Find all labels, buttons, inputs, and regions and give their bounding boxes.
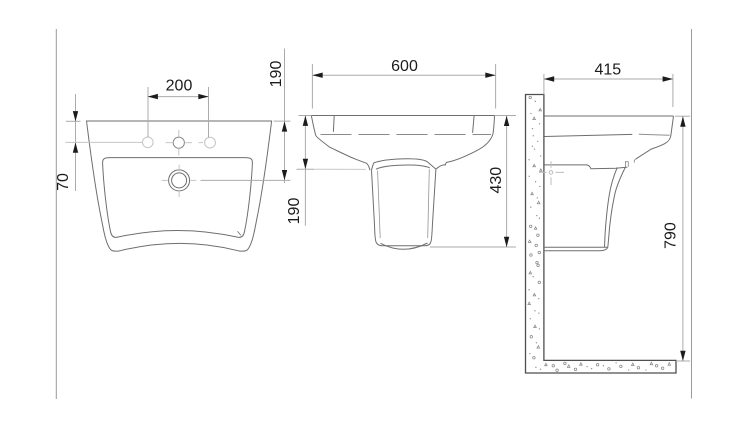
svg-text:790: 790 xyxy=(663,222,680,249)
svg-text:600: 600 xyxy=(391,58,418,75)
svg-text:70: 70 xyxy=(55,173,72,191)
svg-text:190: 190 xyxy=(286,198,303,225)
svg-text:415: 415 xyxy=(594,62,621,79)
svg-text:200: 200 xyxy=(166,78,193,95)
svg-text:430: 430 xyxy=(488,167,505,194)
svg-text:190: 190 xyxy=(268,61,285,88)
